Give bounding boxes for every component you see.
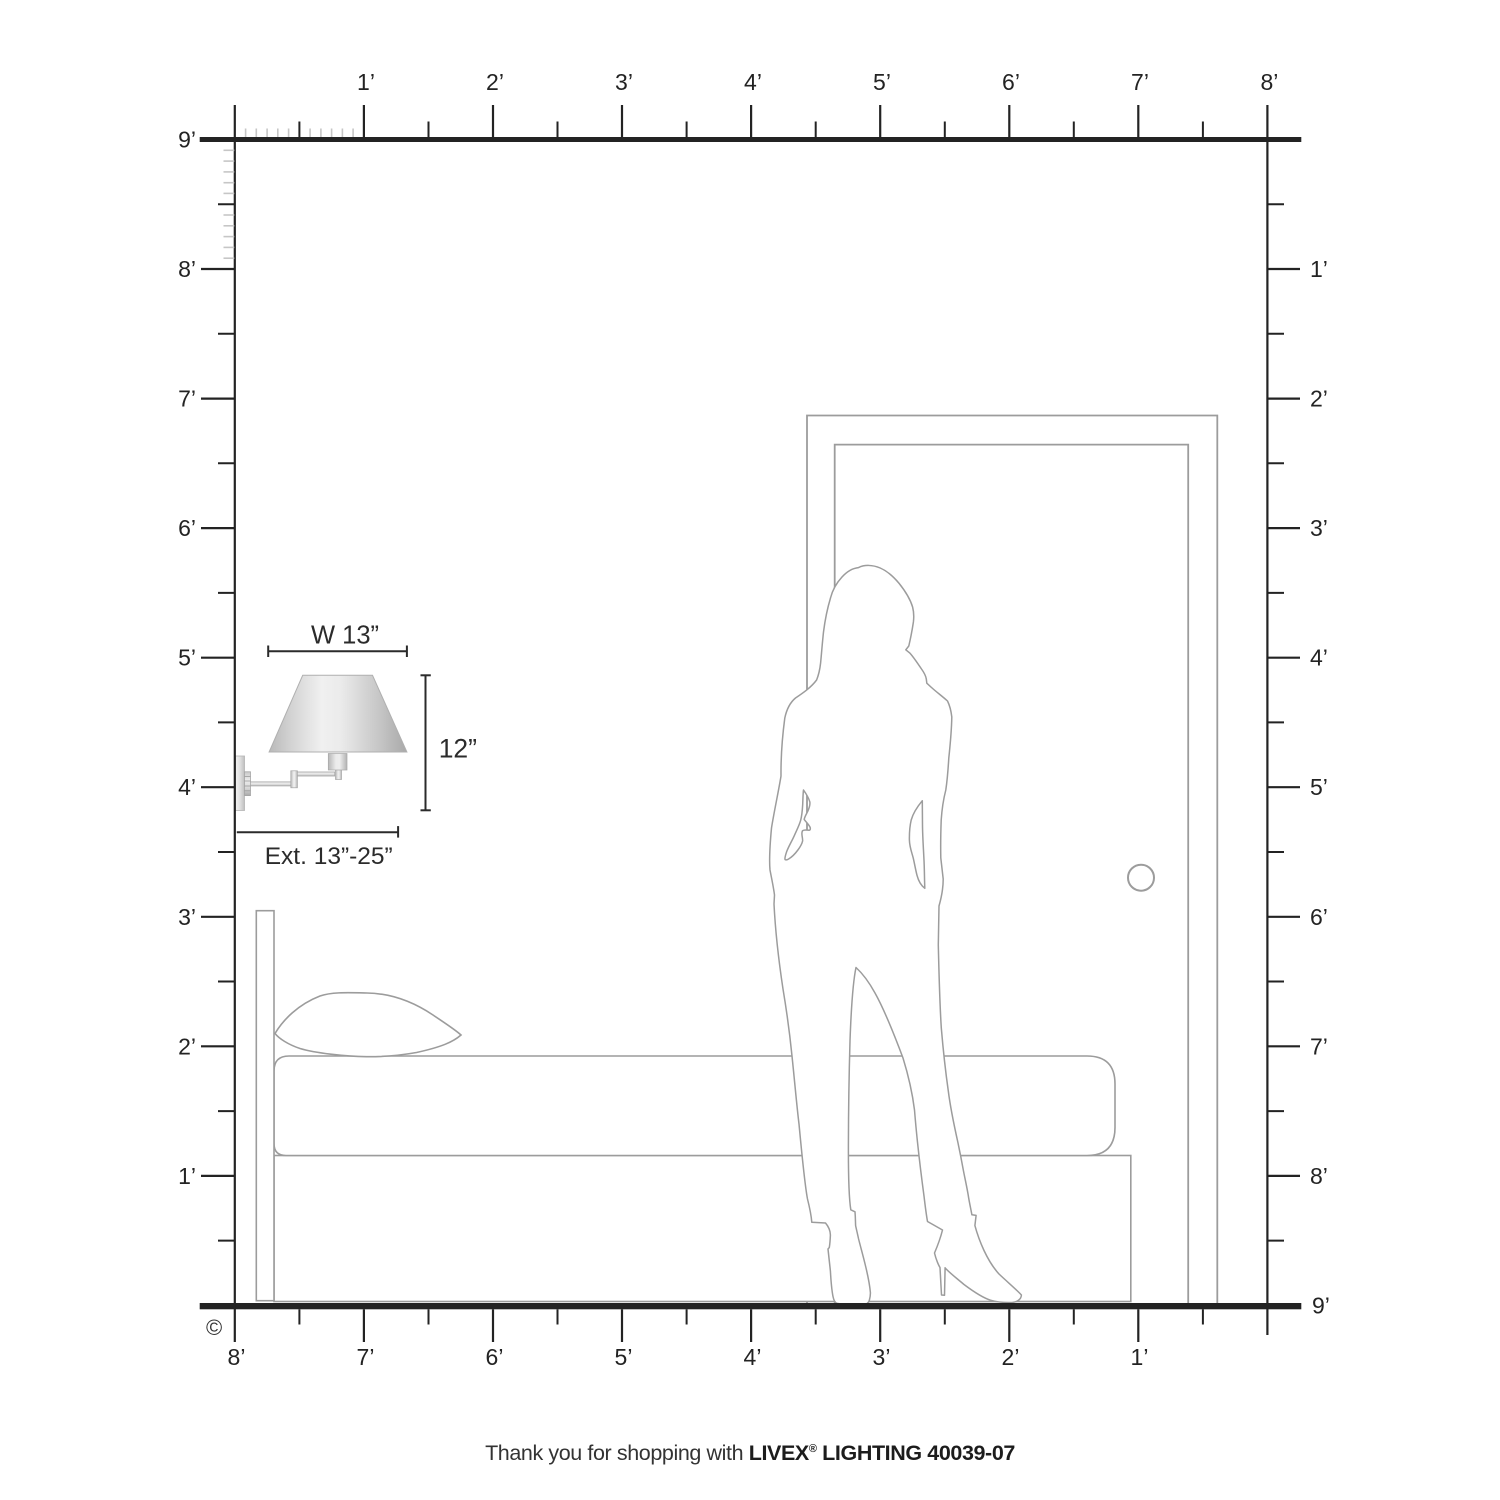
svg-text:9’: 9’ <box>178 127 196 153</box>
svg-text:8’: 8’ <box>1310 1163 1328 1189</box>
svg-text:2’: 2’ <box>178 1033 196 1059</box>
svg-text:4’: 4’ <box>178 774 196 800</box>
svg-text:2’: 2’ <box>1002 1344 1020 1370</box>
svg-text:8’: 8’ <box>1260 69 1278 95</box>
svg-text:Thank you for shopping with LI: Thank you for shopping with LIVEX® LIGHT… <box>485 1441 1015 1465</box>
svg-text:7’: 7’ <box>1310 1033 1328 1059</box>
svg-text:1’: 1’ <box>1131 1344 1149 1370</box>
svg-text:4’: 4’ <box>1310 645 1328 671</box>
svg-text:3’: 3’ <box>615 69 633 95</box>
svg-text:3’: 3’ <box>1310 515 1328 541</box>
svg-text:3’: 3’ <box>178 904 196 930</box>
svg-text:1’: 1’ <box>357 69 375 95</box>
svg-text:3’: 3’ <box>873 1344 891 1370</box>
svg-text:2’: 2’ <box>1310 386 1328 412</box>
svg-text:7’: 7’ <box>1131 69 1149 95</box>
svg-text:1’: 1’ <box>1310 256 1328 282</box>
svg-text:5’: 5’ <box>615 1344 633 1370</box>
svg-text:7’: 7’ <box>178 386 196 412</box>
svg-text:2’: 2’ <box>486 69 504 95</box>
svg-text:Ext. 13”-25”: Ext. 13”-25” <box>265 843 393 870</box>
svg-text:9’: 9’ <box>1312 1293 1330 1319</box>
svg-text:8’: 8’ <box>178 256 196 282</box>
svg-text:6’: 6’ <box>178 515 196 541</box>
svg-text:1’: 1’ <box>178 1163 196 1189</box>
svg-text:8’: 8’ <box>228 1344 246 1370</box>
svg-text:5’: 5’ <box>1310 774 1328 800</box>
svg-text:©: © <box>206 1315 222 1340</box>
svg-text:5’: 5’ <box>178 645 196 671</box>
svg-text:12”: 12” <box>439 734 477 764</box>
svg-text:5’: 5’ <box>873 69 891 95</box>
svg-text:4’: 4’ <box>744 69 762 95</box>
svg-text:6’: 6’ <box>1310 904 1328 930</box>
svg-text:W 13”: W 13” <box>311 622 379 650</box>
svg-text:6’: 6’ <box>1002 69 1020 95</box>
svg-text:4’: 4’ <box>744 1344 762 1370</box>
svg-text:6’: 6’ <box>486 1344 504 1370</box>
svg-text:7’: 7’ <box>357 1344 375 1370</box>
